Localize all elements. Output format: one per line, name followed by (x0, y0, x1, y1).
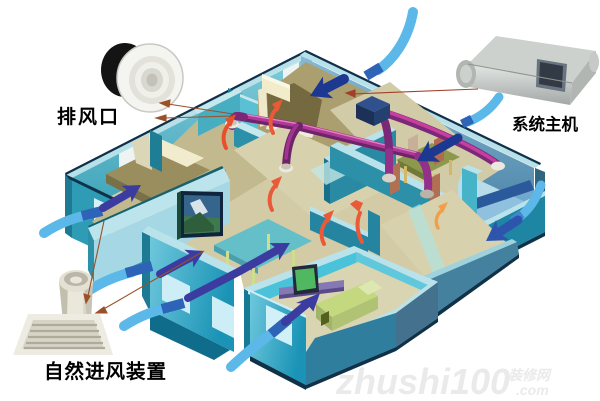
svg-text:装修网: 装修网 (508, 367, 552, 383)
svg-text:.com: .com (516, 382, 549, 398)
svg-text:zhushi100: zhushi100 (335, 361, 510, 401)
